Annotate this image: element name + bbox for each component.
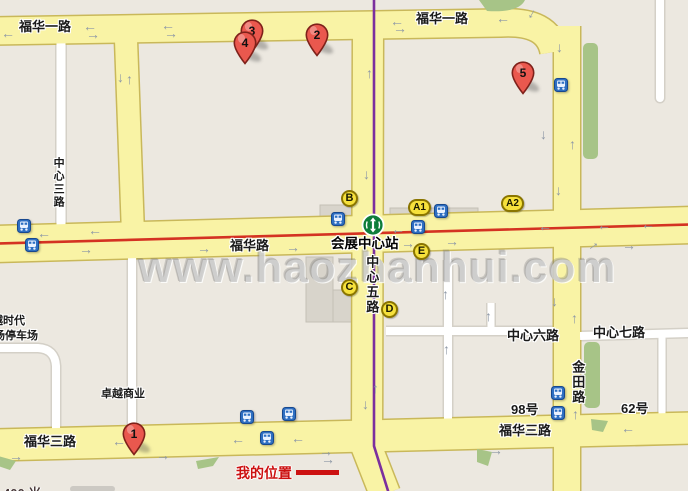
traffic-arrow-right-icon: → [156, 448, 170, 462]
road-label-zhongxin-wu-lu: 中心五路 [364, 255, 378, 315]
map-pin-2[interactable]: 2 [305, 23, 329, 57]
traffic-arrow-down-icon: ↓ [363, 167, 370, 181]
traffic-arrow-down-icon: ↓ [117, 70, 124, 84]
bus-stop-icon[interactable] [551, 406, 565, 420]
traffic-arrow-left-icon: ← [496, 11, 510, 25]
traffic-arrow-up-icon: ↑ [443, 342, 450, 356]
bus-stop-icon[interactable] [17, 219, 31, 233]
bus-stop-icon[interactable] [551, 386, 565, 400]
traffic-arrow-left-icon: ← [1, 26, 15, 40]
traffic-arrow-right-icon: → [489, 443, 503, 457]
road-label-zhongxin-qi-lu: 中心七路 [593, 326, 645, 340]
traffic-arrow-up-icon: ↑ [366, 66, 373, 80]
traffic-arrow-left-icon: ← [538, 219, 552, 233]
bus-stop-icon[interactable] [411, 220, 425, 234]
road-label-jintian-lu: 金田路 [570, 360, 584, 405]
exit-badge-A2[interactable]: A2 [501, 195, 524, 212]
traffic-arrow-up-icon: ↑ [571, 311, 578, 325]
map-pin-4[interactable]: 4 [233, 31, 257, 65]
exit-badge-E[interactable]: E [413, 243, 430, 260]
traffic-arrow-down-icon: ↓ [551, 294, 558, 308]
bus-stop-icon[interactable] [240, 410, 254, 424]
exit-badge-C[interactable]: C [341, 279, 358, 296]
pin-number: 1 [122, 427, 146, 441]
traffic-arrow-right-icon: → [164, 26, 178, 40]
traffic-arrow-right-icon: → [86, 27, 100, 41]
label-62-hao: 62号 [621, 402, 648, 416]
road-fuhua-san-lu [0, 428, 688, 445]
scale-bar [70, 486, 115, 491]
traffic-arrow-up-icon: ↑ [485, 309, 492, 323]
my-location-label: 我的位置 [236, 463, 292, 483]
bus-stop-icon[interactable] [260, 431, 274, 445]
exit-badge-D[interactable]: D [381, 301, 398, 318]
traffic-arrow-left-icon: ← [641, 217, 655, 231]
road-label-fuhua-san-lu-left: 福华三路 [24, 435, 76, 449]
map-pin-1[interactable]: 1 [122, 422, 146, 456]
traffic-arrow-down-icon: ↓ [540, 127, 547, 141]
traffic-arrow-left-icon: ← [37, 226, 51, 240]
traffic-arrow-up-icon: ↑ [569, 137, 576, 151]
road-label-fuhua-san-lu-right: 福华三路 [499, 424, 551, 438]
map-canvas[interactable]: www.haozhanhui.com 福华一路 福华一路 福华路 福华三路 福华… [0, 0, 688, 491]
exit-badge-A1[interactable]: A1 [408, 199, 431, 216]
metro-station-name: 会展中心站 [331, 232, 399, 252]
traffic-arrow-left-icon: ← [291, 431, 305, 445]
traffic-arrow-left-icon: ← [231, 432, 245, 446]
traffic-arrow-right-icon: → [622, 238, 636, 252]
road-label-zhongxin-san-lu: 中心三路 [52, 157, 64, 209]
pin-number: 4 [233, 36, 257, 50]
traffic-arrow-right-icon: → [393, 21, 407, 35]
road-label-fuhua-yi-lu-left: 福华一路 [19, 20, 71, 34]
road-label-fuhua-yi-lu-right: 福华一路 [416, 12, 468, 26]
traffic-arrow-right-icon: → [321, 452, 335, 466]
traffic-arrow-left-icon: ← [597, 218, 611, 232]
traffic-arrow-up-icon: ↑ [126, 72, 133, 86]
place-label-zhuoyue-shangye: 卓越商业 [101, 388, 145, 400]
bus-stop-icon[interactable] [331, 212, 345, 226]
pin-number: 2 [305, 28, 329, 42]
traffic-arrow-left-icon: ← [88, 223, 102, 237]
my-location-line [296, 470, 339, 475]
traffic-arrow-up-icon: ↑ [572, 407, 579, 421]
traffic-arrow-down-icon: ↓ [556, 40, 563, 54]
bus-stop-icon[interactable] [554, 78, 568, 92]
traffic-arrow-down-icon: ↓ [362, 397, 369, 411]
bus-stop-icon[interactable] [25, 238, 39, 252]
map-scale-text: 400 米 [3, 483, 41, 491]
traffic-arrow-left-icon: ← [621, 421, 635, 435]
bus-stop-icon[interactable] [282, 407, 296, 421]
pin-number: 5 [511, 66, 535, 80]
bus-stop-icon[interactable] [434, 204, 448, 218]
place-label-tingchechang: 场停车场 [0, 330, 38, 342]
road-label-zhongxin-liu-lu: 中心六路 [507, 329, 559, 343]
road-label-fuhua-lu: 福华路 [230, 239, 269, 253]
traffic-arrow-right-icon: → [79, 242, 93, 256]
map-pin-5[interactable]: 5 [511, 61, 535, 95]
exit-badge-B[interactable]: B [341, 190, 358, 207]
traffic-arrow-up-icon: ↑ [372, 381, 379, 395]
label-98-hao: 98号 [511, 403, 538, 417]
place-label-yue-shidai: 越时代 [0, 315, 25, 327]
traffic-arrow-down-icon: ↓ [555, 183, 562, 197]
traffic-arrow-right-icon: → [9, 449, 23, 463]
